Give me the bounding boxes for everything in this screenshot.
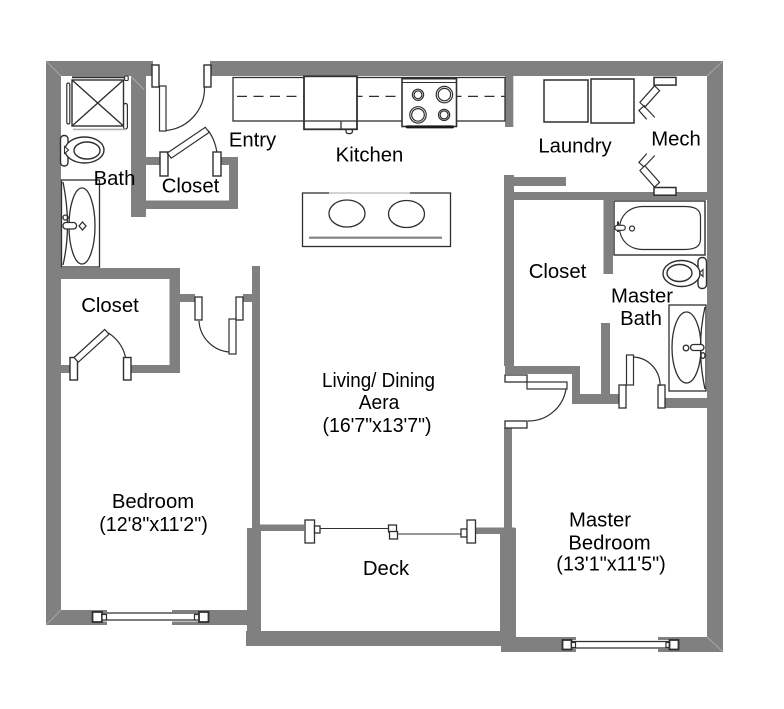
svg-text:Closet: Closet — [529, 261, 587, 283]
svg-text:Master: Master — [569, 510, 631, 532]
svg-text:(13'1"x11'5"): (13'1"x11'5") — [556, 554, 666, 576]
svg-text:Entry: Entry — [229, 130, 277, 152]
svg-text:Bath: Bath — [94, 168, 136, 190]
svg-text:Laundry: Laundry — [538, 136, 612, 158]
svg-text:Deck: Deck — [363, 558, 410, 580]
svg-text:Living/ Dining: Living/ Dining — [322, 370, 435, 392]
svg-text:Closet: Closet — [81, 295, 139, 317]
svg-text:Aera: Aera — [359, 392, 400, 414]
svg-text:(16'7"x13'7"): (16'7"x13'7") — [323, 415, 432, 437]
svg-text:Bedroom: Bedroom — [112, 491, 194, 513]
svg-text:Bath: Bath — [620, 308, 662, 330]
svg-text:Closet: Closet — [162, 176, 220, 198]
svg-text:Mech: Mech — [651, 129, 701, 151]
svg-text:Kitchen: Kitchen — [336, 145, 404, 167]
svg-text:Master: Master — [611, 286, 673, 308]
svg-text:(12'8"x11'2"): (12'8"x11'2") — [99, 514, 208, 536]
svg-text:Bedroom: Bedroom — [568, 533, 650, 555]
